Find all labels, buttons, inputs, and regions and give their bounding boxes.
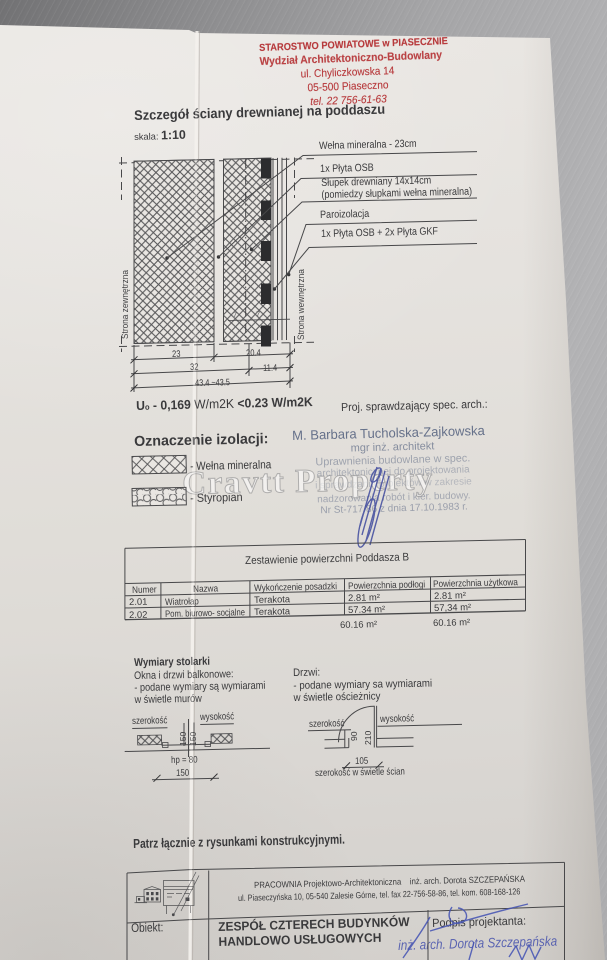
svg-text:7: 7 [233, 310, 237, 319]
svg-text:7: 7 [256, 310, 260, 319]
